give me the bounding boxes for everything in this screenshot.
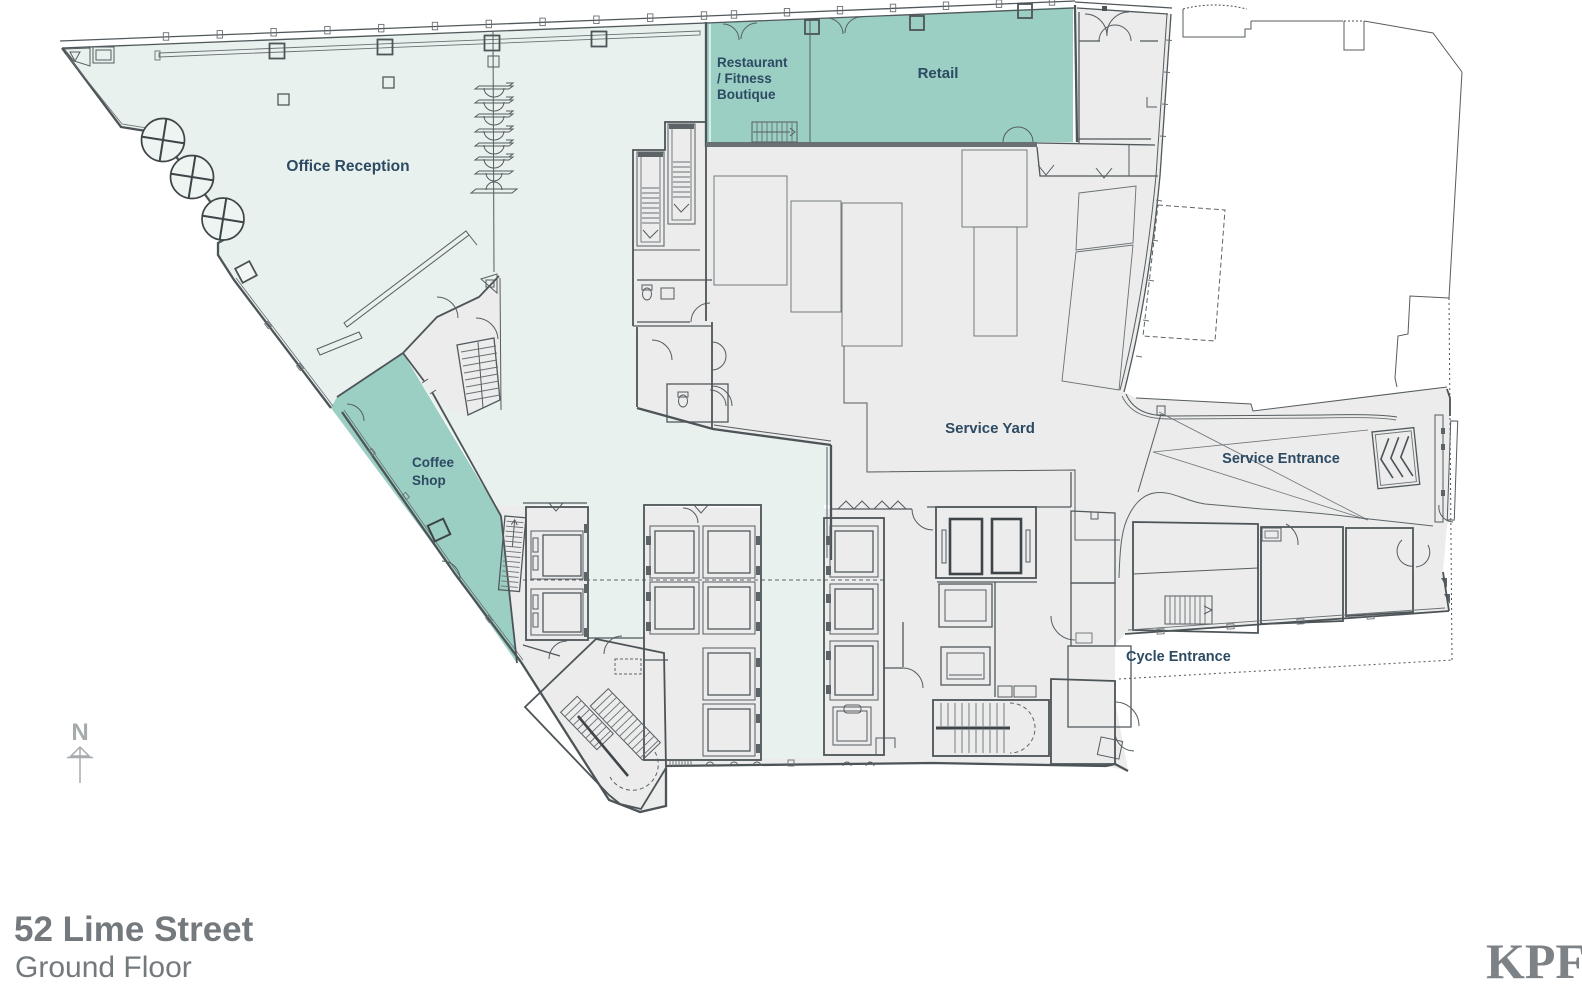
svg-text:/ Fitness: / Fitness [717, 71, 772, 86]
svg-text:Shop: Shop [412, 473, 446, 488]
svg-text:Service Entrance: Service Entrance [1222, 451, 1340, 467]
svg-text:Restaurant: Restaurant [717, 55, 788, 70]
svg-text:Office Reception: Office Reception [286, 158, 409, 175]
svg-text:52 Lime Street: 52 Lime Street [14, 910, 254, 949]
svg-text:Coffee: Coffee [412, 455, 454, 470]
svg-text:Ground Floor: Ground Floor [15, 951, 192, 984]
svg-text:Service Yard: Service Yard [945, 420, 1035, 437]
svg-text:Cycle Entrance: Cycle Entrance [1126, 649, 1231, 665]
svg-text:KPF: KPF [1486, 933, 1582, 989]
svg-text:Boutique: Boutique [717, 87, 776, 102]
svg-text:N: N [71, 719, 88, 746]
svg-text:Retail: Retail [918, 65, 959, 82]
